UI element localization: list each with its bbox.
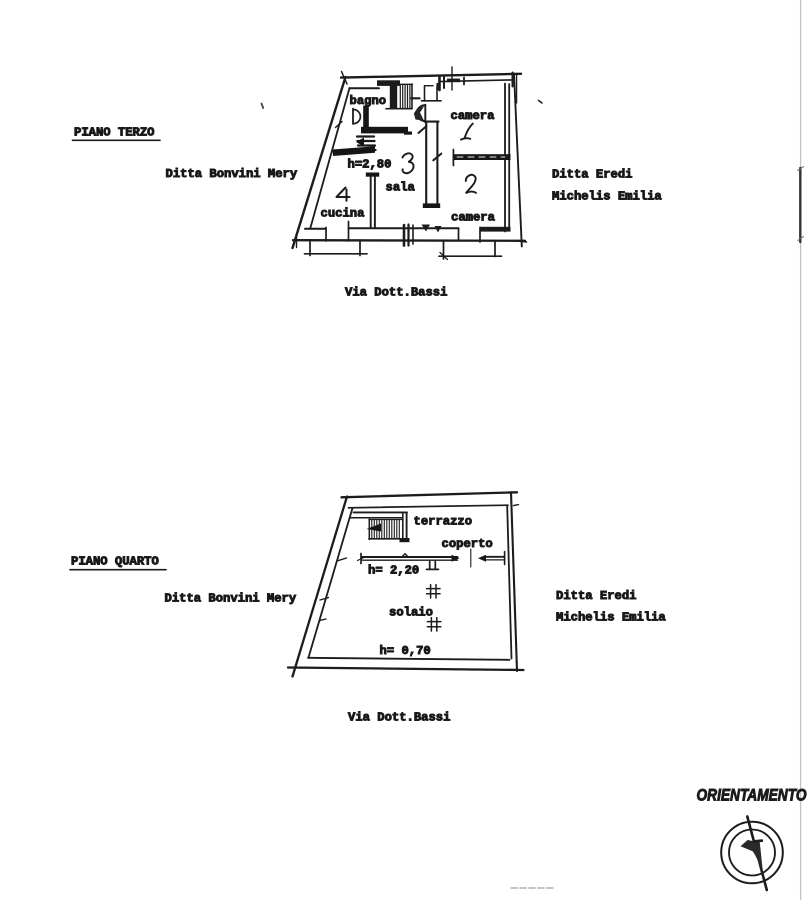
svg-text:ORIENTAMENTO: ORIENTAMENTO bbox=[697, 786, 807, 805]
svg-text:sala: sala bbox=[386, 181, 416, 195]
svg-text:cucina: cucina bbox=[321, 207, 366, 221]
svg-text:Ditta Bonvini Mery: Ditta Bonvini Mery bbox=[165, 592, 297, 606]
svg-text:Ditta Eredi: Ditta Eredi bbox=[552, 168, 632, 182]
svg-text:camera: camera bbox=[451, 109, 496, 123]
svg-text:solaio: solaio bbox=[389, 606, 433, 620]
svg-text:h=2,80: h=2,80 bbox=[348, 158, 392, 172]
svg-text:Ditta Bonvini Mery: Ditta Bonvini Mery bbox=[166, 167, 298, 181]
svg-text:Ditta Eredi: Ditta Eredi bbox=[556, 589, 636, 603]
svg-text:PIANO TERZO: PIANO TERZO bbox=[74, 126, 154, 140]
svg-text:PIANO QUARTO: PIANO QUARTO bbox=[71, 555, 159, 569]
svg-text:coperto: coperto bbox=[442, 537, 493, 551]
svg-text:terrazzo: terrazzo bbox=[414, 515, 473, 529]
svg-text:Via Dott.Bassi: Via Dott.Bassi bbox=[348, 711, 450, 725]
svg-text:Michelis Emilia: Michelis Emilia bbox=[552, 190, 662, 204]
svg-text:h= 0,70: h= 0,70 bbox=[380, 644, 431, 658]
svg-text:Via Dott.Bassi: Via Dott.Bassi bbox=[345, 286, 447, 300]
svg-text:Michelis Emilia: Michelis Emilia bbox=[556, 611, 666, 625]
svg-text:h= 2,20: h= 2,20 bbox=[368, 564, 419, 578]
svg-text:camera: camera bbox=[451, 211, 496, 225]
